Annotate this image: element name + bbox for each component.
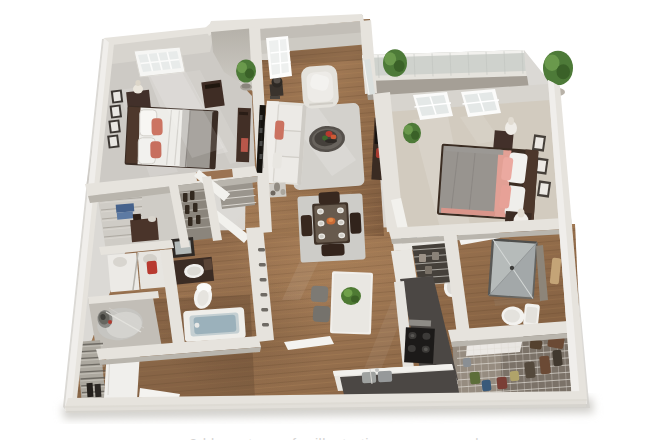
svg-text:3d layouts are for illustrativ: 3d layouts are for illustrative purposes… xyxy=(189,436,487,440)
